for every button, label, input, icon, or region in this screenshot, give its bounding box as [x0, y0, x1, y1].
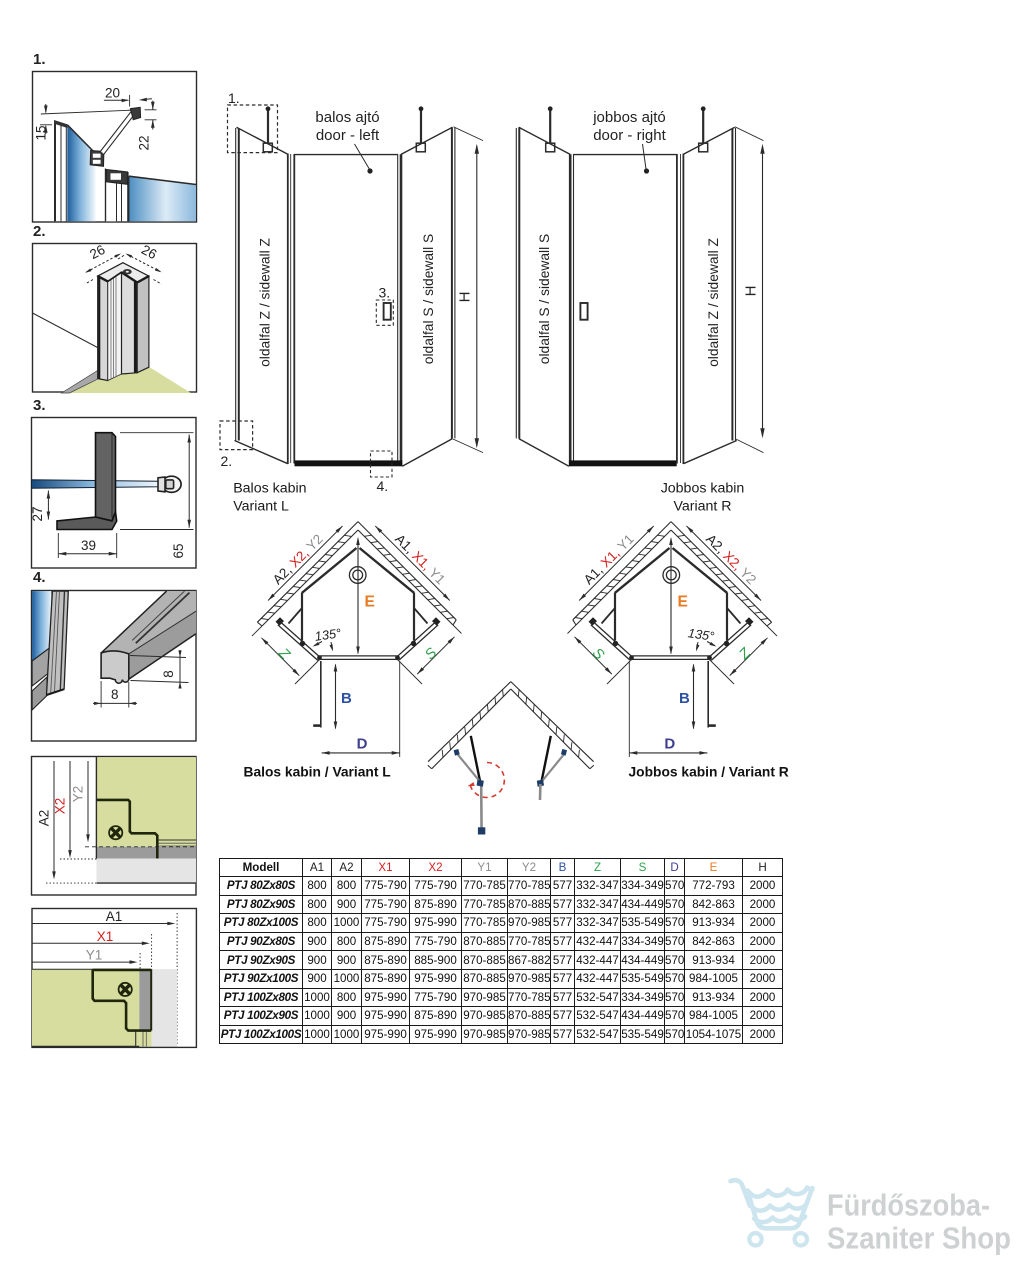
- svg-text:door - left: door - left: [316, 127, 380, 144]
- svg-text:8: 8: [111, 687, 119, 702]
- svg-text:Fürdőszoba-: Fürdőszoba-: [827, 1189, 990, 1223]
- svg-text:26: 26: [139, 242, 159, 262]
- svg-text:E: E: [365, 594, 375, 611]
- svg-text:jobbos ajtó: jobbos ajtó: [592, 109, 666, 126]
- svg-text:X2: X2: [53, 798, 68, 815]
- svg-text:A1, X1, Y1: A1, X1, Y1: [392, 531, 448, 587]
- svg-text:A2: A2: [37, 810, 52, 827]
- svg-text:135°: 135°: [314, 625, 342, 644]
- svg-text:135°: 135°: [687, 625, 715, 644]
- svg-text:Balos kabin: Balos kabin: [233, 481, 306, 497]
- svg-text:B: B: [679, 690, 690, 707]
- svg-text:3.: 3.: [379, 285, 391, 301]
- svg-text:balos ajtó: balos ajtó: [315, 109, 379, 126]
- svg-text:4.: 4.: [33, 569, 46, 586]
- svg-text:Z: Z: [274, 645, 293, 664]
- svg-text:Variant R: Variant R: [673, 499, 731, 515]
- svg-text:Jobbos kabin: Jobbos kabin: [661, 481, 745, 497]
- svg-text:X1: X1: [97, 929, 114, 944]
- svg-text:Y2: Y2: [71, 786, 86, 803]
- svg-text:H: H: [457, 292, 474, 303]
- svg-text:20: 20: [105, 86, 120, 101]
- svg-text:3.: 3.: [33, 397, 46, 414]
- svg-text:Jobbos kabin / Variant R: Jobbos kabin / Variant R: [629, 765, 789, 780]
- svg-text:Variant L: Variant L: [233, 499, 289, 515]
- svg-text:65: 65: [171, 543, 186, 558]
- svg-text:B: B: [341, 690, 352, 707]
- svg-text:4.: 4.: [377, 478, 389, 494]
- svg-text:Y1: Y1: [86, 948, 103, 963]
- svg-text:oldalfal S / sidewall S: oldalfal S / sidewall S: [537, 234, 552, 364]
- svg-text:D: D: [664, 736, 675, 753]
- svg-text:15: 15: [34, 125, 49, 140]
- svg-text:H: H: [743, 286, 760, 297]
- svg-text:door - right: door - right: [593, 127, 666, 144]
- svg-text:Balos kabin / Variant L: Balos kabin / Variant L: [244, 765, 391, 780]
- svg-text:oldalfal Z / sidewall Z: oldalfal Z / sidewall Z: [258, 238, 273, 367]
- svg-text:Z: Z: [736, 645, 755, 664]
- svg-text:1.: 1.: [33, 51, 46, 68]
- svg-text:S: S: [422, 645, 440, 663]
- svg-text:E: E: [678, 594, 688, 611]
- svg-text:27: 27: [30, 506, 45, 521]
- svg-text:8: 8: [161, 670, 176, 678]
- svg-text:D: D: [357, 736, 368, 753]
- svg-text:oldalfal Z / sidewall Z: oldalfal Z / sidewall Z: [706, 238, 721, 367]
- svg-text:26: 26: [87, 242, 107, 262]
- svg-text:22: 22: [137, 135, 152, 150]
- svg-text:oldalfal S / sidewall S: oldalfal S / sidewall S: [421, 234, 436, 364]
- svg-text:A1: A1: [106, 909, 123, 924]
- svg-text:2.: 2.: [33, 223, 46, 240]
- svg-text:1.: 1.: [228, 90, 240, 106]
- svg-text:S: S: [589, 645, 607, 663]
- svg-text:2.: 2.: [221, 453, 233, 469]
- svg-text:Szaniter Shop: Szaniter Shop: [827, 1222, 1011, 1256]
- svg-text:39: 39: [81, 538, 96, 553]
- svg-text:A1, X1, Y1: A1, X1, Y1: [581, 531, 637, 587]
